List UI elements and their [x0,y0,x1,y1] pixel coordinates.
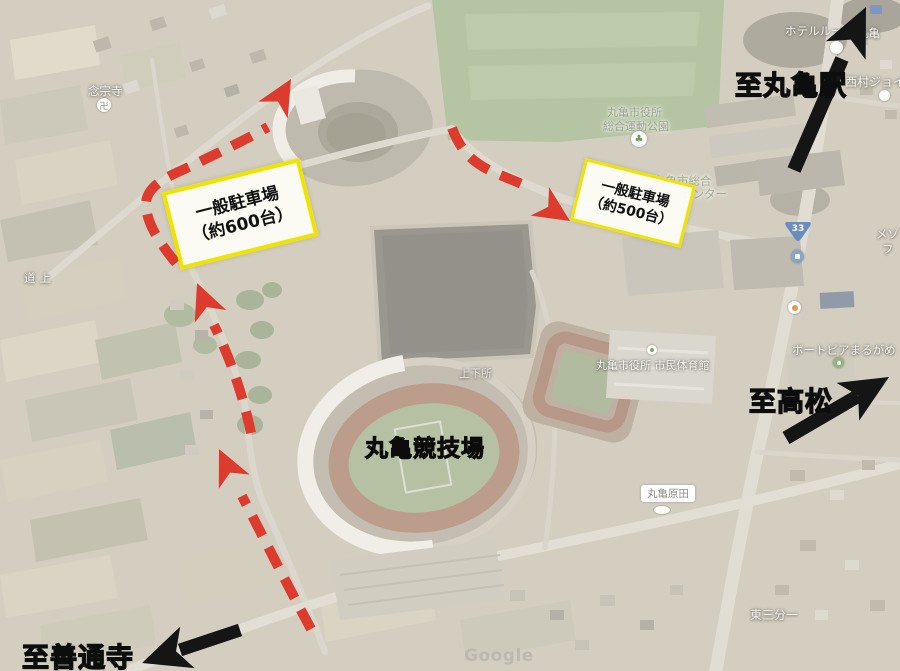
annotated-access-map: 念宗寺 卍 道上 上下所 丸亀市役所 総合運動公園 ♣ 丸亀市総合 センター ホ… [0,0,900,671]
stadium-title: 丸亀競技場 [365,429,485,463]
parking-label-500: 一般駐車場 （約500台） [570,158,696,248]
destination-marugame-station: 至丸亀駅 [735,64,847,103]
parking-label-600: 一般駐車場 （約600台） [161,158,318,270]
destination-zentsuji: 至善通寺 [22,636,134,671]
destination-takamatsu: 至高松 [749,380,833,419]
annotation-layer: 一般駐車場 （約600台） 一般駐車場 （約500台） 至丸亀駅 至高松 至善通… [0,0,900,671]
